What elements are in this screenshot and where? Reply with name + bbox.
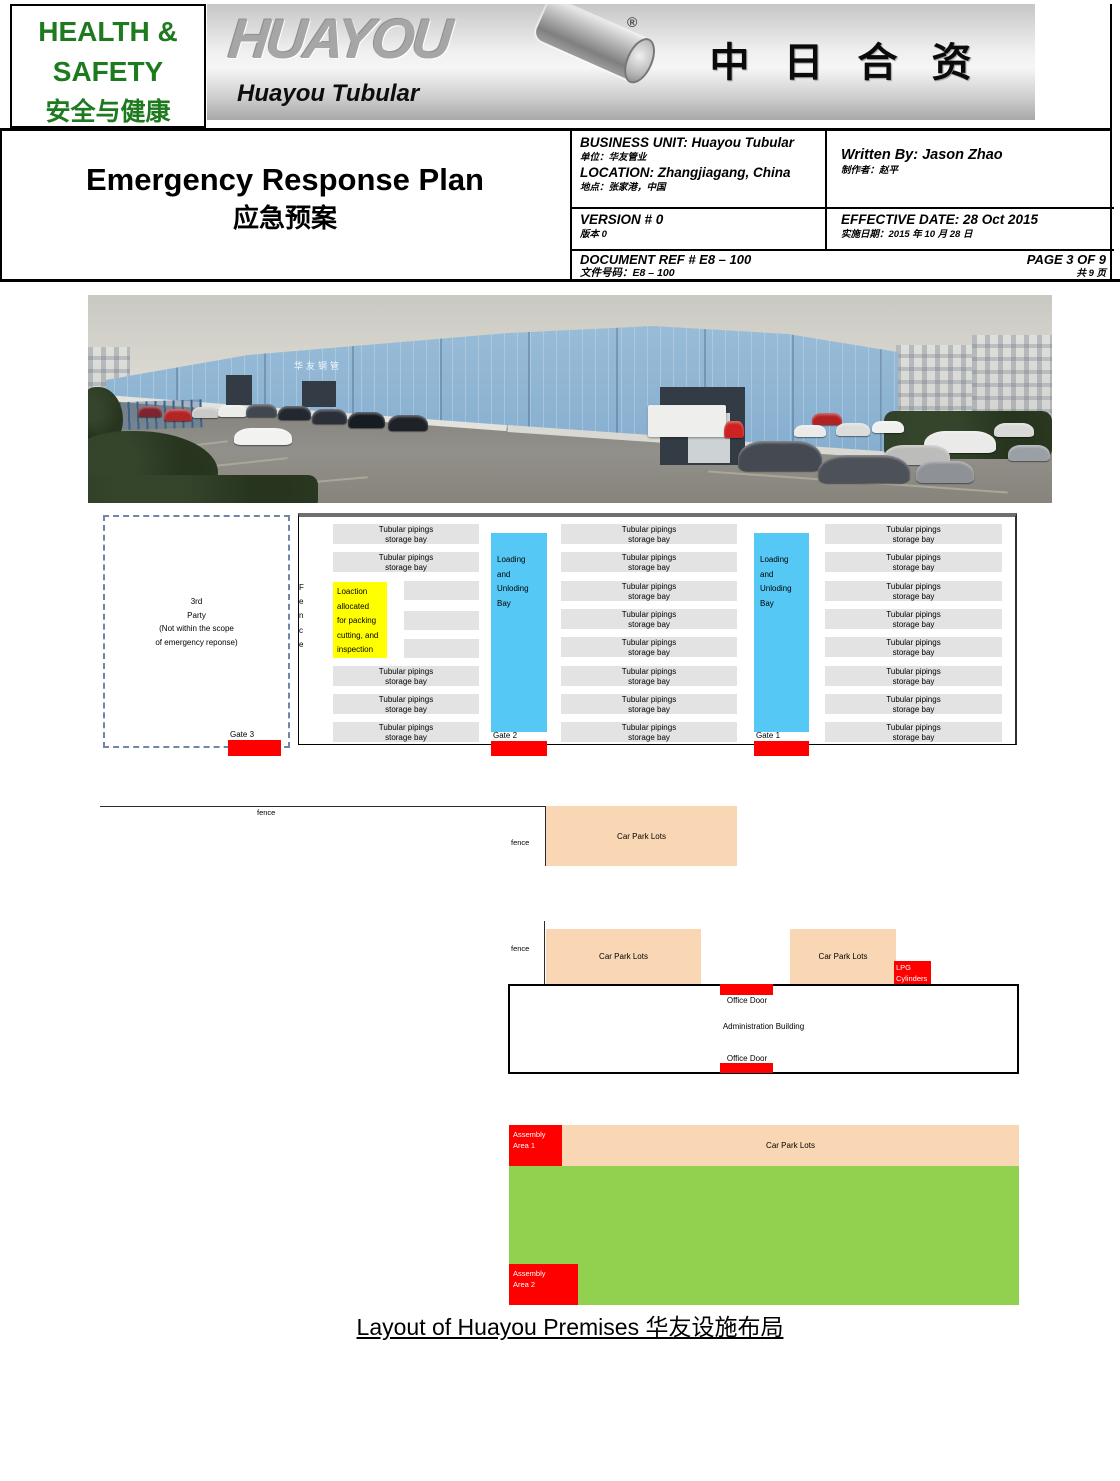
car-park-lots: Car Park Lots — [790, 929, 896, 984]
gate1-label: Gate 1 — [756, 731, 780, 740]
storage-bay: Tubular pipingsstorage bay — [333, 722, 479, 742]
doc-ref-zh: 文件号码：E8 – 100 — [580, 267, 825, 279]
version-zh: 版本 0 — [580, 228, 825, 241]
third-party-line: 3rd — [103, 595, 290, 609]
van — [738, 441, 822, 471]
assembly-line: Assembly — [513, 1129, 562, 1140]
bushes-bottom — [88, 475, 318, 503]
yellow-line: inspection — [337, 643, 387, 658]
fence-letter: F — [299, 581, 309, 595]
document-title: Emergency Response Plan 应急预案 — [8, 160, 562, 236]
third-party-line: of emergency reponse) — [103, 636, 290, 650]
loading-line: Unloding — [760, 582, 809, 597]
car — [994, 423, 1034, 437]
title-english: Emergency Response Plan — [8, 160, 562, 200]
storage-bay: Tubular pipingsstorage bay — [825, 666, 1002, 686]
car — [278, 406, 311, 420]
empty-bay — [404, 611, 479, 630]
business-unit-zh: 单位：华友管业 — [580, 151, 825, 164]
fence-label: fence — [511, 944, 529, 953]
storage-bay: Tubular pipingsstorage bay — [333, 694, 479, 714]
storage-bay: Tubular pipingsstorage bay — [561, 581, 737, 601]
loading-line: Loading — [760, 553, 809, 568]
layout-caption: Layout of Huayou Premises 华友设施布局 — [0, 1308, 1120, 1342]
car-park-lots: Car Park Lots — [562, 1125, 1019, 1166]
fence-line — [544, 921, 545, 984]
empty-bay — [404, 639, 479, 658]
storage-bay: Tubular pipingsstorage bay — [333, 666, 479, 686]
empty-bay — [404, 581, 479, 600]
loading-unloading-bay-2: Loading and Unloding Bay — [491, 533, 547, 732]
gate3-marker — [228, 740, 281, 756]
lpg-line: LPG — [896, 962, 931, 973]
storage-bay: Tubular pipingsstorage bay — [561, 609, 737, 629]
office-door-top-marker — [720, 984, 773, 995]
registered-mark: ® — [627, 14, 637, 30]
suv — [818, 455, 910, 483]
storage-bay: Tubular pipingsstorage bay — [825, 722, 1002, 742]
third-party-label: 3rd Party (Not within the scope of emerg… — [103, 595, 290, 649]
loading-line: Bay — [760, 597, 809, 612]
gate1-marker — [754, 741, 809, 756]
car — [246, 404, 277, 417]
storage-bay: Tubular pipingsstorage bay — [561, 722, 737, 742]
page-number-zh: 共 9 页 — [825, 267, 1106, 279]
storage-bay: Tubular pipingsstorage bay — [561, 524, 737, 544]
fence-label: fence — [511, 838, 529, 847]
car-park-lots: Car Park Lots — [546, 806, 737, 866]
fence-letter: c — [299, 624, 309, 638]
fence-letter: e — [299, 595, 309, 609]
loading-line: Bay — [497, 597, 547, 612]
gate2-marker — [491, 741, 547, 756]
effective-date: EFFECTIVE DATE: 28 Oct 2015 — [841, 211, 1114, 228]
badge-line2: SAFETY — [12, 52, 204, 92]
car — [234, 428, 292, 445]
office-door-label: Office Door — [700, 996, 794, 1005]
car — [836, 423, 870, 436]
business-unit: BUSINESS UNIT: Huayou Tubular — [580, 134, 825, 151]
storage-bay: Tubular pipingsstorage bay — [825, 552, 1002, 572]
assembly-area-2: Assembly Area 2 — [509, 1264, 578, 1305]
fence-vertical-label: F e n c e — [299, 581, 309, 652]
huayou-logo-wordmark: HUAYOU — [226, 6, 453, 71]
car — [348, 412, 385, 428]
page-number: PAGE 3 OF 9 — [825, 252, 1106, 267]
storage-bay: Tubular pipingsstorage bay — [333, 552, 479, 572]
gate3-label: Gate 3 — [230, 730, 254, 739]
logo-banner: HUAYOU ® Huayou Tubular 中日合资 — [207, 4, 1035, 120]
fence-label: fence — [257, 808, 275, 817]
written-by-cell: Written By: Jason Zhao 制作者：赵平 — [825, 131, 1114, 207]
left-border — [0, 131, 2, 279]
building-door-mid — [302, 381, 336, 407]
storage-bay: Tubular pipingsstorage bay — [825, 609, 1002, 629]
written-by-zh: 制作者：赵平 — [841, 164, 1114, 177]
yellow-line: Loaction — [337, 585, 387, 600]
assembly-line: Area 2 — [513, 1279, 578, 1290]
doc-ref-cell: DOCUMENT REF # E8 – 100 文件号码：E8 – 100 — [572, 249, 825, 279]
header-bottom-rule — [0, 279, 1120, 282]
car — [164, 409, 192, 421]
yellow-line: allocated — [337, 600, 387, 615]
car — [1008, 445, 1050, 461]
car — [388, 415, 428, 431]
storage-bay: Tubular pipingsstorage bay — [561, 637, 737, 657]
car — [872, 421, 904, 433]
lpg-line: Cylinders — [896, 973, 931, 984]
loading-line: Loading — [497, 553, 547, 568]
loading-line: and — [760, 568, 809, 583]
building-door-left — [226, 375, 252, 405]
business-unit-cell: BUSINESS UNIT: Huayou Tubular 单位：华友管业 LO… — [572, 131, 825, 207]
effective-date-zh: 实施日期：2015 年 10 月 28 日 — [841, 228, 1114, 241]
storage-bay: Tubular pipingsstorage bay — [825, 581, 1002, 601]
truck-cab — [724, 421, 744, 438]
loading-line: and — [497, 568, 547, 583]
badge-line3: 安全与健康 — [12, 92, 204, 132]
location: LOCATION: Zhangjiagang, China — [580, 164, 825, 181]
assembly-line: Assembly — [513, 1268, 578, 1279]
car-park-label: Car Park Lots — [617, 832, 666, 841]
storage-bay: Tubular pipingsstorage bay — [333, 524, 479, 544]
doc-ref: DOCUMENT REF # E8 – 100 — [580, 252, 825, 267]
car — [312, 409, 347, 424]
office-door-label: Office Door — [700, 1054, 794, 1063]
loading-unloading-bay-1: Loading and Unloding Bay — [754, 533, 809, 732]
storage-bay: Tubular pipingsstorage bay — [825, 637, 1002, 657]
logo-subtitle: Huayou Tubular — [237, 80, 419, 108]
effective-date-cell: EFFECTIVE DATE: 28 Oct 2015 实施日期：2015 年 … — [825, 207, 1114, 249]
fence-letter: e — [299, 638, 309, 652]
packing-cutting-inspection-area: Loaction allocated for packing cutting, … — [333, 582, 387, 658]
car — [218, 405, 247, 417]
administration-building-label: Administration Building — [508, 1022, 1019, 1031]
car-park-label: Car Park Lots — [819, 952, 868, 961]
office-door-bottom-marker — [720, 1063, 773, 1073]
fence-line — [100, 806, 545, 807]
storage-bay: Tubular pipingsstorage bay — [561, 666, 737, 686]
gate2-label: Gate 2 — [493, 731, 517, 740]
storage-bay: Tubular pipingsstorage bay — [561, 552, 737, 572]
car-park-label: Car Park Lots — [766, 1141, 815, 1150]
storage-bay: Tubular pipingsstorage bay — [561, 694, 737, 714]
health-safety-badge: HEALTH & SAFETY 安全与健康 — [10, 4, 206, 128]
yellow-line: for packing — [337, 614, 387, 629]
joint-venture-text: 中日合资 — [685, 30, 1030, 88]
document-meta-table: BUSINESS UNIT: Huayou Tubular 单位：华友管业 LO… — [570, 131, 1112, 279]
car-park-lots: Car Park Lots — [546, 929, 701, 984]
fence-letter: n — [299, 609, 309, 623]
suv — [916, 461, 974, 483]
title-chinese: 应急预案 — [8, 200, 562, 236]
loading-line: Unloding — [497, 582, 547, 597]
document-page: HEALTH & SAFETY 安全与健康 HUAYOU ® Huayou Tu… — [0, 0, 1120, 1481]
building-sign: 华友钢管 — [294, 359, 342, 372]
pipe-end-icon — [618, 34, 661, 88]
assembly-line: Area 1 — [513, 1140, 562, 1151]
written-by: Written By: Jason Zhao — [841, 147, 1114, 164]
assembly-area-1: Assembly Area 1 — [509, 1125, 562, 1166]
badge-line1: HEALTH & — [12, 12, 204, 52]
car — [812, 413, 842, 425]
green-field — [509, 1166, 1019, 1305]
car — [138, 406, 162, 417]
box-truck — [648, 405, 726, 437]
version-cell: VERSION # 0 版本 0 — [572, 207, 825, 249]
third-party-line: (Not within the scope — [103, 622, 290, 636]
car-park-label: Car Park Lots — [599, 952, 648, 961]
page-number-cell: PAGE 3 OF 9 共 9 页 — [825, 249, 1114, 279]
car — [192, 407, 219, 418]
lpg-cylinders-area: LPG Cylinders — [894, 961, 931, 986]
storage-bay: Tubular pipingsstorage bay — [825, 694, 1002, 714]
site-photo: 华友钢管 — [88, 295, 1052, 503]
yellow-line: cutting, and — [337, 629, 387, 644]
third-party-line: Party — [103, 609, 290, 623]
location-zh: 地点：张家港，中国 — [580, 181, 825, 194]
storage-bay: Tubular pipingsstorage bay — [825, 524, 1002, 544]
car — [794, 425, 826, 437]
version: VERSION # 0 — [580, 211, 825, 228]
